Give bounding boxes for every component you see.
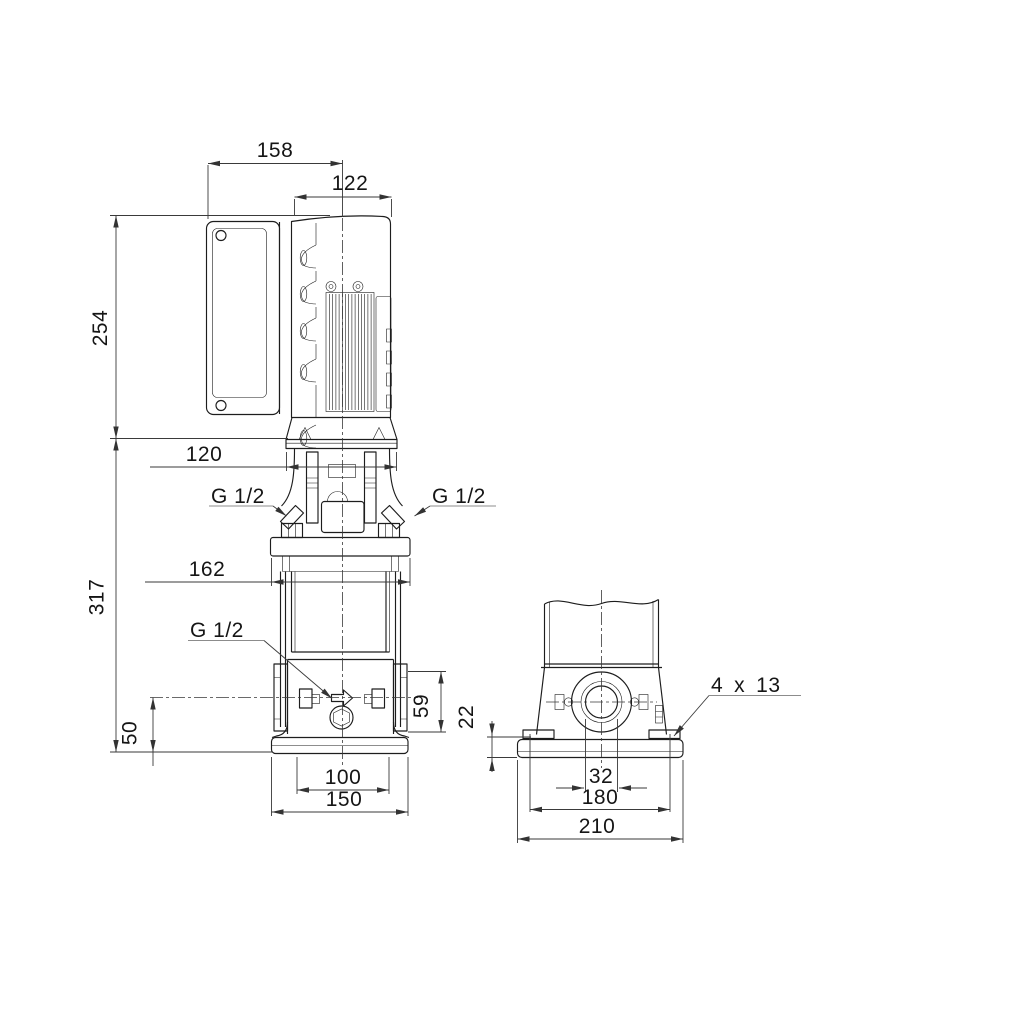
bolt-holes-label: 4 x 13 xyxy=(711,674,781,697)
label-bolt-holes: 4 x 13 xyxy=(674,674,801,736)
label-drain-port: G 1/2 xyxy=(188,619,332,699)
dim-label-foot-width: 100 xyxy=(325,766,362,789)
cooling-fins xyxy=(326,293,374,412)
gauge-port-left-label: G 1/2 xyxy=(211,485,265,508)
dim-label-motor-height: 254 xyxy=(89,310,112,347)
dim-label-port-bore: 32 xyxy=(589,765,613,788)
dim-label-port-center-height: 50 xyxy=(119,721,142,745)
screw-hole-icon xyxy=(216,401,226,411)
dim-label-overall-width: 158 xyxy=(257,139,294,162)
dim-label-pump-height: 317 xyxy=(86,579,109,616)
front-view xyxy=(518,590,684,768)
dim-overall-width: 158 xyxy=(208,139,343,219)
side-view xyxy=(150,216,418,768)
label-gauge-port-right: G 1/2 xyxy=(415,485,497,516)
control-box xyxy=(207,222,280,415)
dim-port-boss-height: 59 xyxy=(408,672,446,733)
drain-port-label: G 1/2 xyxy=(190,619,244,642)
gauge-port-right-label: G 1/2 xyxy=(432,485,486,508)
technical-drawing: 158 122 254 317 120 162 50 59 10 xyxy=(0,0,1024,1024)
cable-gland-bosses xyxy=(300,251,307,446)
dim-label-base-width-front: 210 xyxy=(579,815,616,838)
terminal-screws xyxy=(326,282,363,292)
head-flange xyxy=(271,538,411,557)
label-gauge-port-left: G 1/2 xyxy=(209,485,287,516)
vent-plug-left xyxy=(281,506,304,530)
dim-head-flange-width: 162 xyxy=(145,558,410,586)
dim-motor-diameter: 122 xyxy=(295,172,392,217)
dim-label-port-boss-height: 59 xyxy=(410,694,433,718)
flow-arrow-icon xyxy=(332,690,353,706)
dim-port-center-height: 50 xyxy=(119,698,154,767)
dim-coupling-width: 120 xyxy=(150,443,397,471)
dim-base-plate-thickness: 22 xyxy=(455,705,531,772)
base-plate-side xyxy=(272,738,409,754)
dim-label-base-plate-thickness: 22 xyxy=(455,705,478,729)
dim-label-motor-diameter: 122 xyxy=(332,172,369,195)
dim-label-head-flange-width: 162 xyxy=(189,558,226,581)
screw-hole-icon xyxy=(216,231,226,241)
dim-label-coupling-width: 120 xyxy=(186,443,223,466)
pump-foot xyxy=(272,660,409,738)
drawing-canvas: 158 122 254 317 120 162 50 59 10 xyxy=(0,0,1024,1024)
base-plate-front xyxy=(518,740,684,758)
vent-plug-right xyxy=(382,506,405,530)
motor xyxy=(292,216,392,448)
dim-label-base-width-side: 150 xyxy=(326,788,363,811)
dim-label-bolt-spacing: 180 xyxy=(582,786,619,809)
motor-side-panel xyxy=(376,297,392,412)
dim-motor-height: 254 xyxy=(89,216,330,439)
side-tag xyxy=(656,706,663,724)
